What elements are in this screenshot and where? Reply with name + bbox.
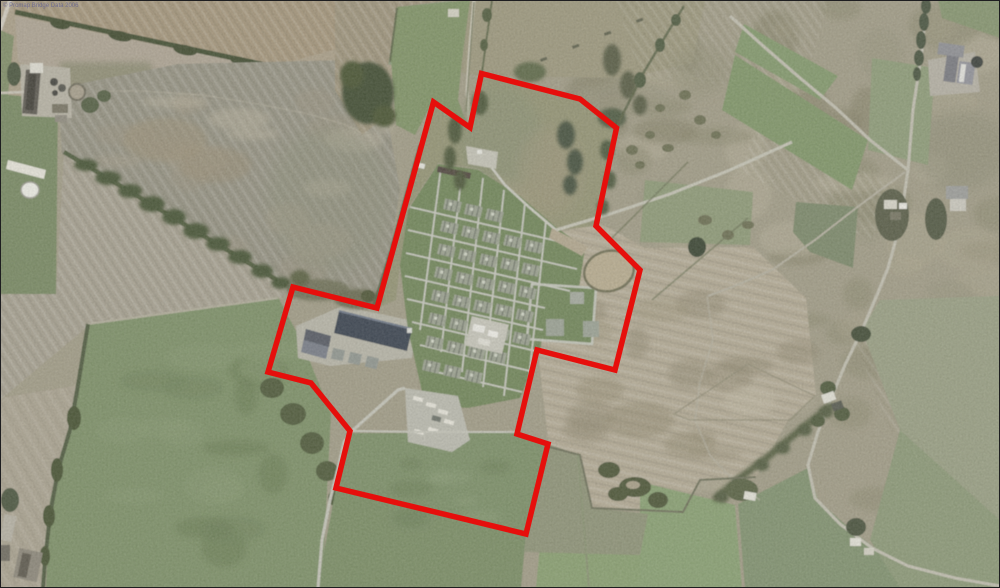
svg-text:© Promap Bridge Data 2006: © Promap Bridge Data 2006 [3,2,79,9]
